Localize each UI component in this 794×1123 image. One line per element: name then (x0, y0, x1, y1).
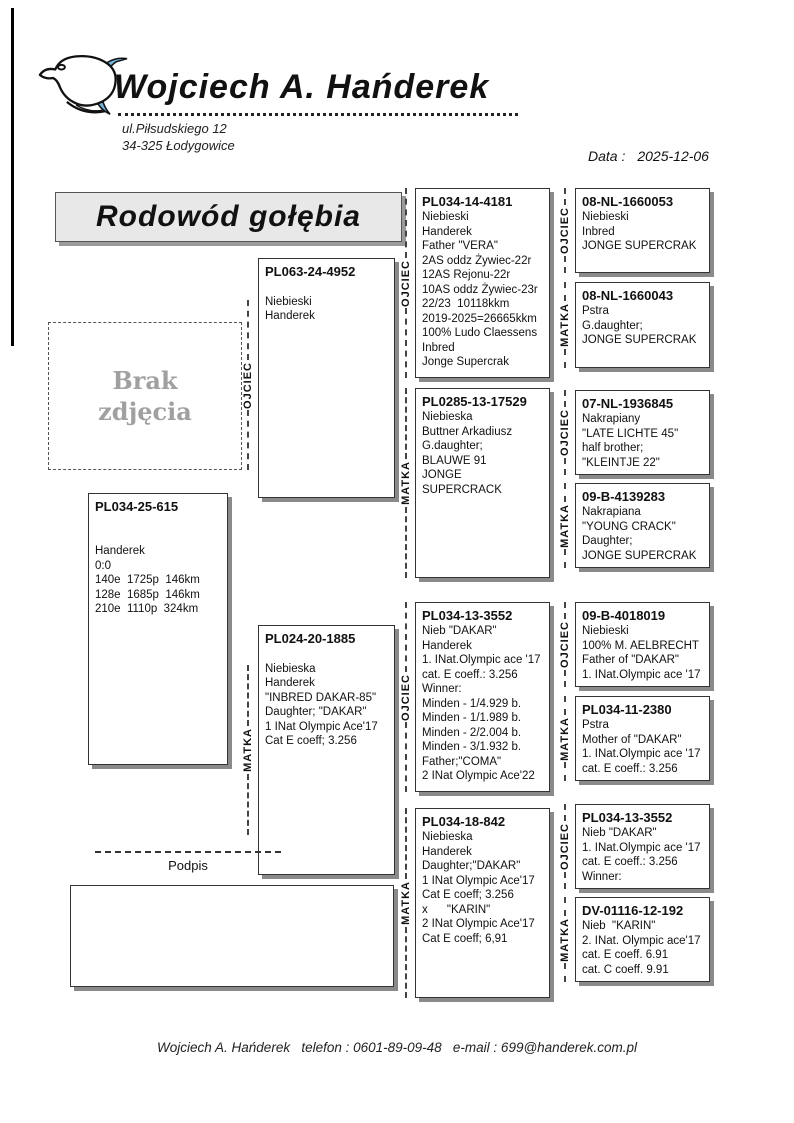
dashed-connector (405, 507, 407, 578)
dashed-connector (564, 549, 566, 568)
pedigree-document-page: Wojciech A. Hańderek ul.Piłsudskiego 12 … (0, 0, 794, 1123)
dashed-connector (564, 872, 566, 889)
dashed-connector (405, 188, 407, 258)
address-line-2: 34-325 Łodygowice (122, 138, 235, 153)
dashed-connector (405, 602, 407, 672)
dashed-connector (405, 308, 407, 378)
pigeon-details: Handerek 0:0 140e 1725p 146km 128e 1685p… (89, 515, 227, 617)
relation-label-mother: MATKA (240, 665, 256, 835)
ring-number: 09-B-4139283 (576, 484, 709, 505)
dashed-connector (564, 349, 566, 368)
pedigree-box-ggmother-4: DV-01116-12-192 Nieb "KARIN" 2. INat. Ol… (575, 897, 710, 982)
dashed-connector (247, 665, 249, 726)
photo-placeholder: Brak zdjęcia (48, 322, 242, 470)
dashed-connector (564, 458, 566, 475)
dashed-connector (405, 722, 407, 792)
footer-contact: Wojciech A. Hańderek telefon : 0601-89-0… (0, 1040, 794, 1055)
signature-label: Podpis (95, 858, 281, 873)
document-title-box: Rodowód gołębia (55, 192, 402, 242)
dashed-connector (247, 774, 249, 835)
dashed-connector (564, 256, 566, 273)
notes-box (70, 885, 394, 987)
pigeon-details: Pstra G.daughter; JONGE SUPERCRAK (576, 304, 709, 348)
pedigree-box-ggfather-1: 08-NL-1660053 Niebieski Inbred JONGE SUP… (575, 188, 710, 273)
dashed-connector (564, 696, 566, 715)
pedigree-box-ggfather-2: 07-NL-1936845 Nakrapiany "LATE LICHTE 45… (575, 390, 710, 475)
left-margin-line (11, 8, 14, 346)
relation-label-father: OJCIEC (398, 188, 414, 378)
pedigree-box-grandmother-paternal: PL0285-13-17529 Niebieska Buttner Arkadi… (415, 388, 550, 578)
pigeon-details: Nieb "DAKAR" 1. INat.Olympic ace '17 cat… (576, 826, 709, 884)
dashed-connector (564, 483, 566, 502)
ring-number: 07-NL-1936845 (576, 391, 709, 412)
relation-label-mother: MATKA (557, 696, 573, 781)
dashed-connector (564, 670, 566, 687)
pedigree-box-ggfather-4: PL034-13-3552 Nieb "DAKAR" 1. INat.Olymp… (575, 804, 710, 889)
pedigree-box-grandmother-maternal: PL034-18-842 Niebieska Handerek Daughter… (415, 808, 550, 998)
date-line: Data :2025-12-06 (588, 148, 709, 164)
relation-label-father: OJCIEC (240, 300, 256, 470)
ring-number: PL034-25-615 (89, 494, 227, 515)
dashed-connector (564, 804, 566, 821)
ring-number: 08-NL-1660053 (576, 189, 709, 210)
dashed-connector (564, 762, 566, 781)
pedigree-box-mother: PL024-20-1885 Niebieska Handerek "INBRED… (258, 625, 395, 875)
pigeon-details: Niebieski Handerek Father "VERA" 2AS odd… (416, 210, 549, 370)
page-title: Rodowód gołębia (96, 200, 361, 234)
date-label: Data : (588, 148, 625, 164)
signature-line (95, 851, 281, 853)
dashed-connector (247, 300, 249, 360)
ring-number: 08-NL-1660043 (576, 283, 709, 304)
pedigree-box-grandfather-maternal: PL034-13-3552 Nieb "DAKAR" Handerek 1. I… (415, 602, 550, 792)
pigeon-details: Nakrapiana "YOUNG CRACK" Daughter; JONGE… (576, 505, 709, 563)
pigeon-details: Niebieska Buttner Arkadiusz G.daughter; … (416, 410, 549, 497)
pedigree-box-ggmother-2: 09-B-4139283 Nakrapiana "YOUNG CRACK" Da… (575, 483, 710, 568)
pigeon-details: Nakrapiany "LATE LICHTE 45" half brother… (576, 412, 709, 470)
dashed-connector (405, 388, 407, 459)
pedigree-box-grandfather-paternal: PL034-14-4181 Niebieski Handerek Father … (415, 188, 550, 378)
dashed-connector (564, 897, 566, 916)
no-photo-text: Brak zdjęcia (98, 365, 192, 427)
dashed-connector (564, 963, 566, 982)
dashed-connector (564, 188, 566, 205)
relation-label-father: OJCIEC (557, 804, 573, 889)
dashed-connector (405, 808, 407, 879)
relation-label-father: OJCIEC (557, 602, 573, 687)
pedigree-box-ggmother-3: PL034-11-2380 Pstra Mother of "DAKAR" 1.… (575, 696, 710, 781)
pedigree-box-father: PL063-24-4952 Niebieski Handerek (258, 258, 395, 498)
name-underline (118, 113, 518, 116)
pedigree-box-ggmother-1: 08-NL-1660043 Pstra G.daughter; JONGE SU… (575, 282, 710, 368)
dashed-connector (405, 927, 407, 998)
ring-number: PL024-20-1885 (259, 626, 394, 647)
relation-label-mother: MATKA (557, 282, 573, 368)
pigeon-details: Niebieski 100% M. AELBRECHT Father of "D… (576, 624, 709, 682)
dashed-connector (564, 390, 566, 407)
relation-label-father: OJCIEC (557, 390, 573, 475)
pigeon-details: Pstra Mother of "DAKAR" 1. INat.Olympic … (576, 718, 709, 776)
ring-number: PL034-18-842 (416, 809, 549, 830)
relation-label-mother: MATKA (557, 483, 573, 568)
relation-label-mother: MATKA (398, 808, 414, 998)
pigeon-details: Niebieska Handerek "INBRED DAKAR-85" Dau… (259, 647, 394, 749)
dashed-connector (564, 602, 566, 619)
pigeon-details: Niebieska Handerek Daughter;"DAKAR" 1 IN… (416, 830, 549, 946)
relation-label-father: OJCIEC (398, 602, 414, 792)
relation-label-father: OJCIEC (557, 188, 573, 273)
pigeon-details: Nieb "KARIN" 2. INat. Olympic ace'17 cat… (576, 919, 709, 977)
pigeon-details: Nieb "DAKAR" Handerek 1. INat.Olympic ac… (416, 624, 549, 784)
relation-label-mother: MATKA (398, 388, 414, 578)
pedigree-box-subject: PL034-25-615 Handerek 0:0 140e 1725p 146… (88, 493, 228, 765)
ring-number: PL034-11-2380 (576, 697, 709, 718)
ring-number: PL034-13-3552 (576, 805, 709, 826)
pigeon-details: Niebieski Inbred JONGE SUPERCRAK (576, 210, 709, 254)
ring-number: DV-01116-12-192 (576, 898, 709, 919)
breeder-name: Wojciech A. Hańderek (114, 68, 489, 107)
ring-number: PL034-14-4181 (416, 189, 549, 210)
dashed-connector (564, 282, 566, 301)
ring-number: PL034-13-3552 (416, 603, 549, 624)
pigeon-details: Niebieski Handerek (259, 280, 394, 324)
ring-number: PL063-24-4952 (259, 259, 394, 280)
dashed-connector (247, 410, 249, 470)
pedigree-box-ggfather-3: 09-B-4018019 Niebieski 100% M. AELBRECHT… (575, 602, 710, 687)
address-line-1: ul.Piłsudskiego 12 (122, 121, 227, 136)
relation-label-mother: MATKA (557, 897, 573, 982)
date-value: 2025-12-06 (637, 148, 709, 164)
ring-number: PL0285-13-17529 (416, 389, 549, 410)
ring-number: 09-B-4018019 (576, 603, 709, 624)
